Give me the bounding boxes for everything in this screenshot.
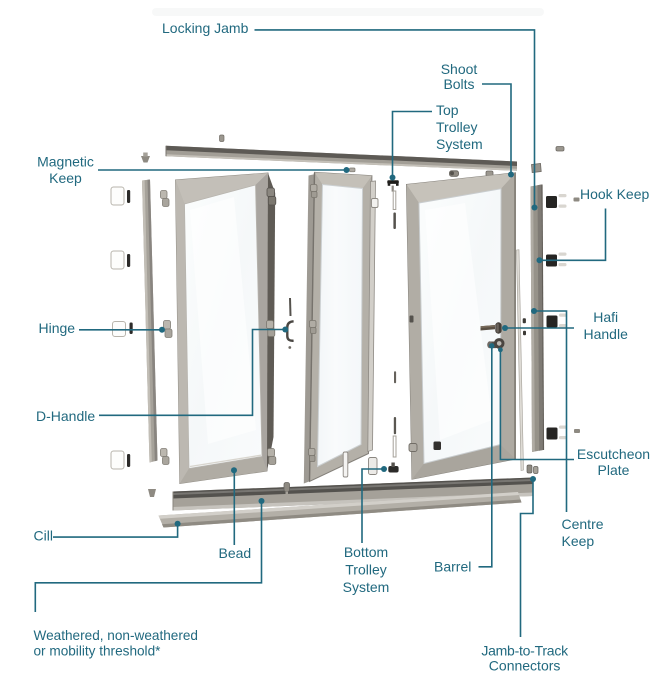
svg-text:Bolts: Bolts bbox=[443, 76, 474, 92]
svg-text:Hafi: Hafi bbox=[593, 309, 618, 325]
svg-text:Hinge: Hinge bbox=[39, 320, 76, 336]
svg-text:Trolley: Trolley bbox=[345, 562, 387, 578]
svg-text:or mobility threshold*: or mobility threshold* bbox=[34, 644, 162, 659]
svg-text:Top: Top bbox=[436, 102, 459, 118]
svg-text:Plate: Plate bbox=[598, 462, 630, 478]
svg-text:System: System bbox=[343, 579, 390, 595]
svg-text:Locking Jamb: Locking Jamb bbox=[162, 20, 249, 36]
svg-text:Jamb-to-Track: Jamb-to-Track bbox=[481, 642, 569, 658]
svg-text:Magnetic: Magnetic bbox=[37, 154, 94, 170]
svg-text:Keep: Keep bbox=[562, 533, 595, 549]
svg-text:Trolley: Trolley bbox=[436, 119, 478, 135]
svg-text:Bottom: Bottom bbox=[344, 544, 388, 560]
svg-text:D-Handle: D-Handle bbox=[36, 408, 95, 424]
svg-text:Centre: Centre bbox=[562, 516, 604, 532]
svg-text:Bead: Bead bbox=[219, 545, 252, 561]
svg-text:System: System bbox=[436, 136, 483, 152]
svg-text:Handle: Handle bbox=[584, 326, 629, 342]
svg-text:Shoot: Shoot bbox=[441, 61, 478, 77]
svg-text:Cill: Cill bbox=[34, 528, 53, 544]
svg-text:Escutcheon: Escutcheon bbox=[577, 446, 650, 462]
svg-text:Barrel: Barrel bbox=[434, 558, 471, 574]
svg-text:Hook Keep: Hook Keep bbox=[580, 186, 649, 202]
svg-text:Weathered, non-weathered: Weathered, non-weathered bbox=[34, 628, 199, 643]
svg-text:Connectors: Connectors bbox=[489, 657, 561, 673]
svg-text:Keep: Keep bbox=[49, 170, 82, 186]
